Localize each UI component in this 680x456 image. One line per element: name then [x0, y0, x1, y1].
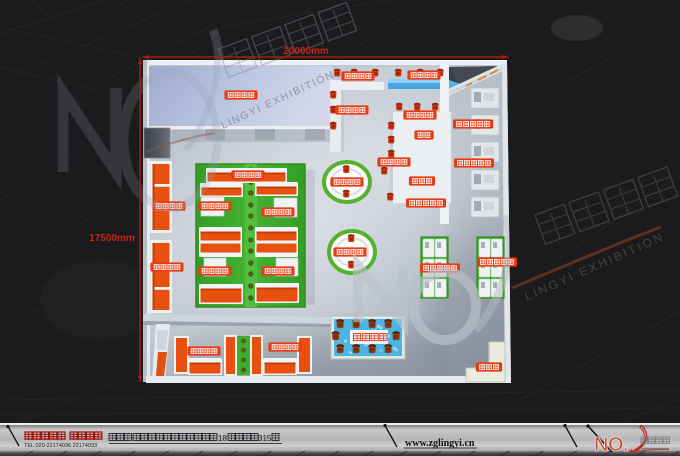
- svg-text:www.zglingyi.cn: www.zglingyi.cn: [405, 438, 475, 449]
- svg-text:NO.: NO.: [594, 434, 628, 456]
- svg-text:17500mm: 17500mm: [89, 233, 135, 244]
- svg-text:18: 18: [218, 434, 227, 443]
- svg-text:315: 315: [258, 434, 272, 443]
- svg-text:TEL:020-22174096 22174093: TEL:020-22174096 22174093: [24, 443, 97, 449]
- svg-text:20000mm: 20000mm: [283, 46, 329, 57]
